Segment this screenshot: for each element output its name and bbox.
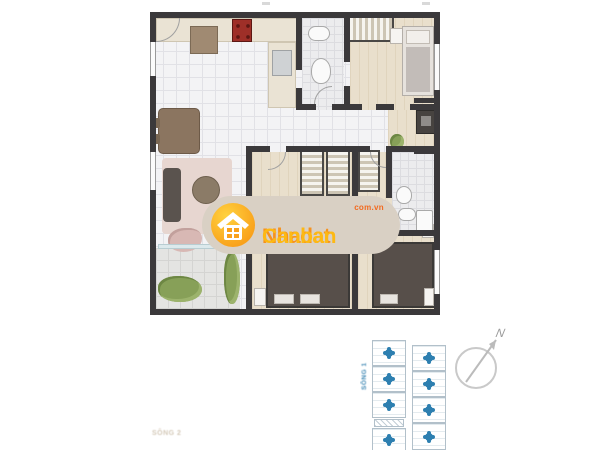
wall-bedrooms-top	[250, 146, 270, 152]
wall-corridor	[296, 104, 316, 110]
wardrobe-1	[348, 16, 394, 42]
compass-north-label: N	[495, 326, 512, 340]
wall-bedrooms-top	[358, 146, 370, 152]
wardrobe-2b	[326, 150, 350, 196]
unit-marker-icon	[425, 354, 433, 362]
floor-plan-page: NhadatCanban com.vn SÔNG 1 N SÔNG 2	[0, 0, 600, 450]
unit-marker-icon	[385, 375, 393, 383]
bed-2-pillow	[300, 294, 320, 304]
nightstand-3b	[424, 288, 434, 306]
kitchen-sink-icon	[272, 50, 292, 76]
key-plan-unit	[412, 371, 446, 397]
key-plan-unit	[412, 345, 446, 371]
key-plan-unit	[372, 392, 406, 418]
building-key-plan: SÔNG 1	[360, 332, 452, 450]
dimension-tick	[262, 2, 270, 5]
wall-bedrooms-top	[286, 146, 354, 152]
fridge-icon	[190, 26, 218, 54]
key-plan-unit	[412, 397, 446, 423]
stove-icon	[232, 19, 252, 42]
plan-footer-label: SÔNG 2	[152, 430, 212, 440]
wall-bath-bedroom1	[344, 12, 350, 62]
watermark-badge: NhadatCanban com.vn	[202, 196, 400, 254]
window	[150, 42, 156, 76]
wardrobe-2	[300, 150, 324, 196]
key-plan-unit	[372, 366, 406, 392]
basin-2-icon	[398, 208, 416, 221]
key-plan-block-label: SÔNG 1	[361, 336, 371, 390]
balcony-plant	[224, 252, 240, 304]
window	[150, 152, 156, 190]
key-plan-unit	[412, 423, 446, 450]
toilet-icon	[311, 58, 331, 84]
wall-corridor	[410, 104, 434, 110]
wall-kitchen-bath	[296, 12, 302, 70]
unit-marker-icon	[385, 349, 393, 357]
wall-bottom	[150, 309, 440, 315]
unit-marker-icon	[385, 436, 393, 444]
bed-1-blanket	[406, 47, 430, 92]
desk-paper	[421, 116, 431, 126]
bed-3-pillow	[380, 294, 398, 304]
wall-corridor	[376, 104, 394, 110]
dining-table	[158, 108, 200, 154]
wall-bedrooms-top	[386, 146, 434, 152]
bed-2-pillow	[274, 294, 294, 304]
toilet-2-icon	[396, 186, 412, 204]
window	[434, 250, 440, 294]
key-plan-unit	[372, 340, 406, 366]
wash-basin-icon	[308, 26, 330, 41]
unit-marker-icon	[425, 406, 433, 414]
unit-marker-icon	[385, 401, 393, 409]
shower-icon	[416, 210, 433, 232]
sofa	[163, 168, 181, 222]
house-logo-icon	[211, 203, 255, 247]
unit-marker-icon	[425, 433, 433, 441]
unit-marker-icon	[425, 380, 433, 388]
wall-top	[150, 12, 440, 18]
dimension-tick	[422, 2, 430, 5]
bed-1-pillow	[406, 30, 430, 44]
watermark-domain-text: com.vn	[354, 203, 384, 212]
key-plan-unit	[372, 428, 406, 450]
balcony-plant	[158, 276, 202, 302]
nightstand-2	[254, 288, 266, 306]
wall-niche	[414, 98, 436, 103]
wall-bathroom2	[386, 152, 392, 198]
window	[434, 44, 440, 90]
brand-part-2: Canban	[262, 225, 336, 249]
stair-core	[374, 419, 404, 427]
wall-corridor	[332, 104, 362, 110]
